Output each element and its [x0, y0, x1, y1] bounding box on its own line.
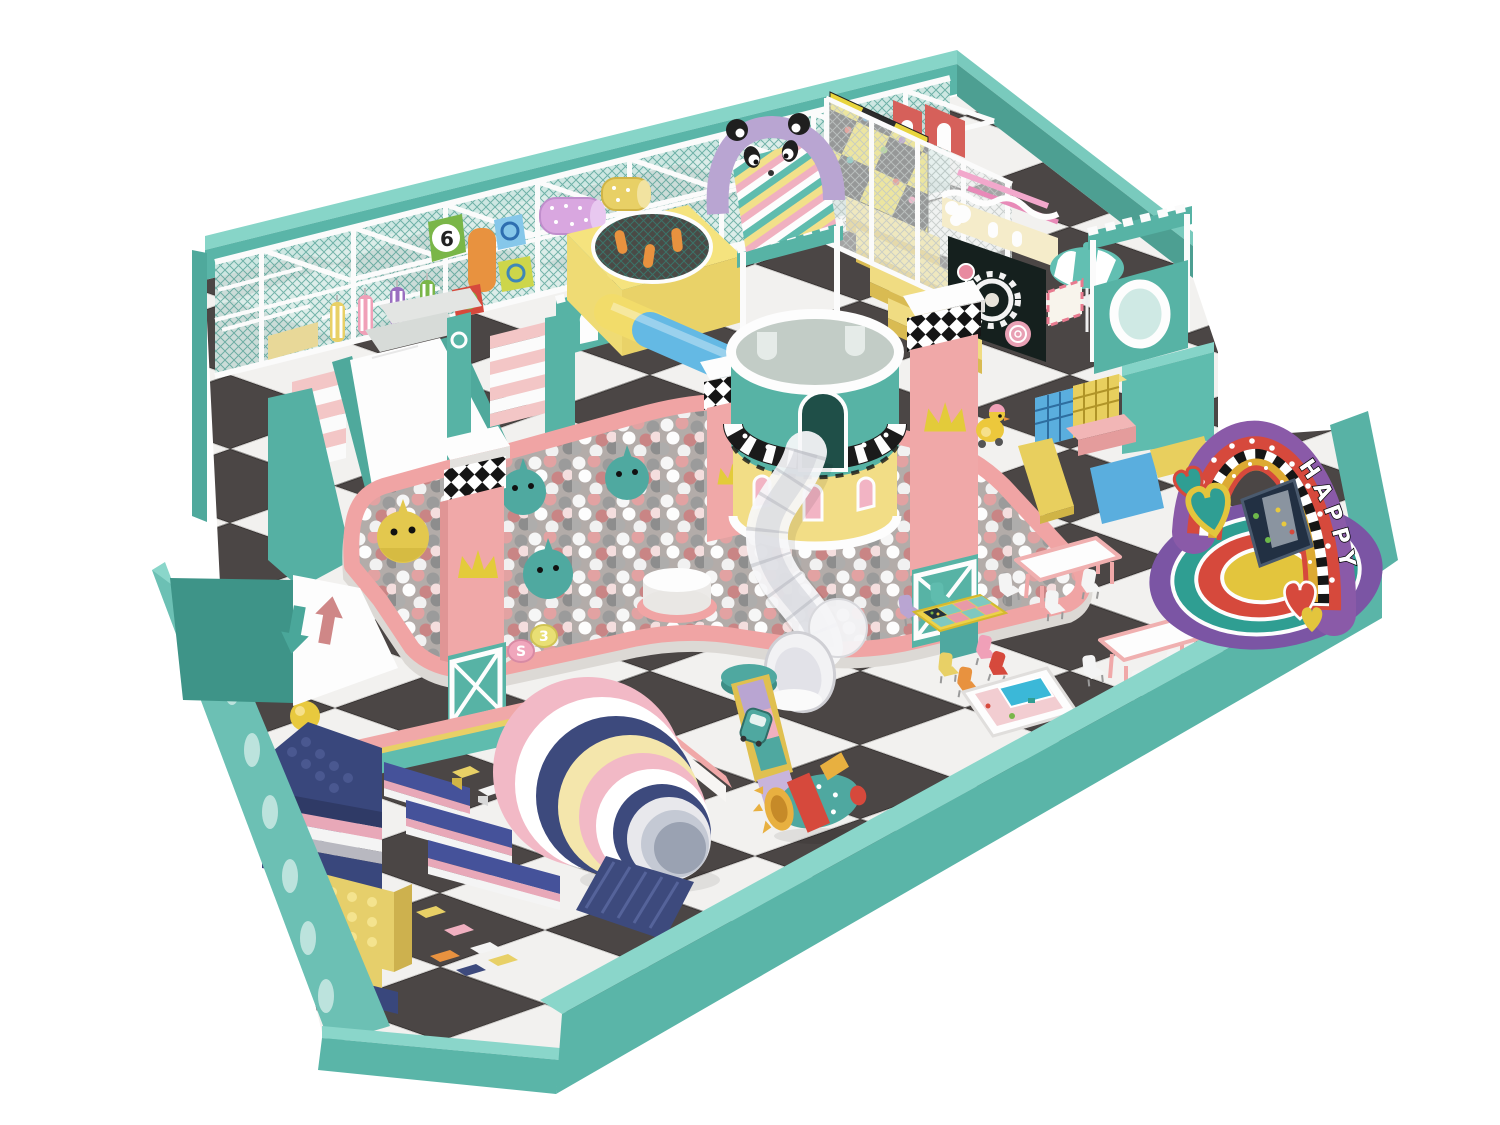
castle-tower-left [438, 426, 510, 730]
pit-stool [637, 568, 717, 623]
castle-tower-right [903, 280, 985, 648]
candy-letter: S [516, 644, 526, 660]
candy-number: 3 [539, 629, 549, 645]
pinwheel-number: 6 [440, 227, 454, 251]
playground-3d-render: 6 [0, 0, 1500, 1125]
